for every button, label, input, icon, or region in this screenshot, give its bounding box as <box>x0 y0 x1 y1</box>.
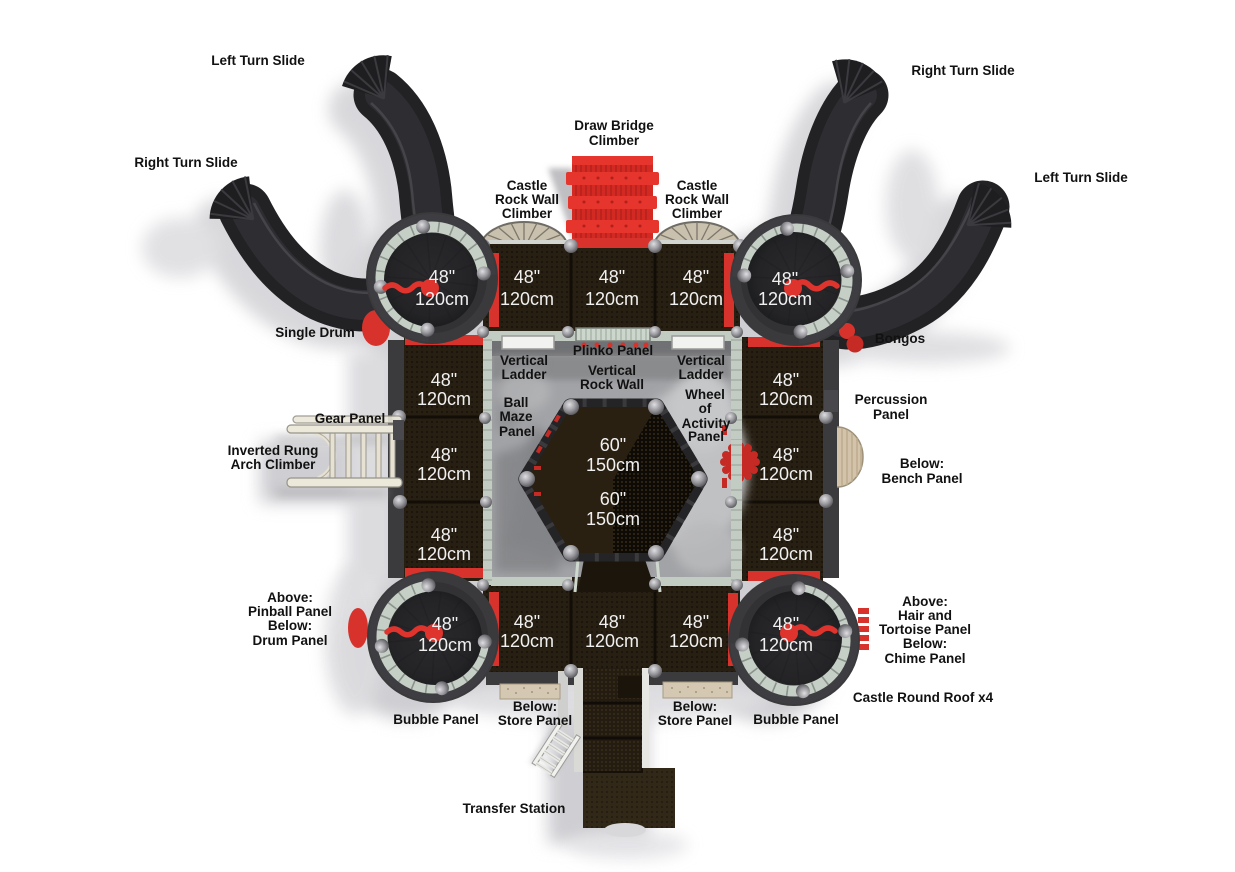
svg-text:Pinball Panel: Pinball Panel <box>248 604 332 619</box>
svg-text:Bubble Panel: Bubble Panel <box>753 712 839 727</box>
svg-text:Single Drum: Single Drum <box>275 325 355 340</box>
svg-text:Inverted Rung: Inverted Rung <box>228 443 319 458</box>
svg-text:Bongos: Bongos <box>875 331 925 346</box>
svg-text:Rock Wall: Rock Wall <box>665 192 729 207</box>
svg-text:48": 48" <box>683 267 709 287</box>
svg-text:Vertical: Vertical <box>500 353 548 368</box>
svg-text:Rock Wall: Rock Wall <box>495 192 559 207</box>
svg-text:120cm: 120cm <box>759 389 813 409</box>
svg-text:120cm: 120cm <box>585 289 639 309</box>
svg-text:Castle Round Roof x4: Castle Round Roof x4 <box>853 690 994 705</box>
svg-text:Rock Wall: Rock Wall <box>580 377 644 392</box>
svg-text:120cm: 120cm <box>759 635 813 655</box>
svg-text:48": 48" <box>773 445 799 465</box>
svg-text:120cm: 120cm <box>418 635 472 655</box>
svg-text:48": 48" <box>431 370 457 390</box>
svg-text:Gear Panel: Gear Panel <box>315 411 386 426</box>
svg-text:Hair and: Hair and <box>898 608 952 623</box>
svg-text:48": 48" <box>683 612 709 632</box>
svg-text:Left Turn Slide: Left Turn Slide <box>1034 170 1128 185</box>
svg-text:Ladder: Ladder <box>678 367 724 382</box>
svg-text:Bench Panel: Bench Panel <box>881 471 962 486</box>
svg-text:Store Panel: Store Panel <box>498 713 572 728</box>
svg-text:Right Turn Slide: Right Turn Slide <box>134 155 238 170</box>
svg-text:48": 48" <box>773 370 799 390</box>
svg-text:Chime Panel: Chime Panel <box>884 651 965 666</box>
svg-text:Climber: Climber <box>502 206 553 221</box>
svg-text:Below:: Below: <box>513 699 557 714</box>
svg-text:120cm: 120cm <box>417 389 471 409</box>
svg-text:120cm: 120cm <box>758 289 812 309</box>
svg-text:120cm: 120cm <box>500 631 554 651</box>
svg-text:48": 48" <box>431 525 457 545</box>
svg-text:Below:: Below: <box>903 636 947 651</box>
svg-text:Castle: Castle <box>507 178 548 193</box>
svg-text:48": 48" <box>431 445 457 465</box>
svg-text:120cm: 120cm <box>669 631 723 651</box>
svg-text:Percussion: Percussion <box>855 392 928 407</box>
svg-text:Vertical: Vertical <box>588 363 636 378</box>
svg-text:Transfer Station: Transfer Station <box>463 801 566 816</box>
svg-text:48": 48" <box>514 612 540 632</box>
svg-text:48": 48" <box>514 267 540 287</box>
svg-text:150cm: 150cm <box>586 509 640 529</box>
svg-text:Left Turn Slide: Left Turn Slide <box>211 53 305 68</box>
svg-text:Climber: Climber <box>672 206 723 221</box>
svg-text:120cm: 120cm <box>417 544 471 564</box>
svg-text:Panel: Panel <box>688 429 724 444</box>
svg-text:Below:: Below: <box>900 456 944 471</box>
svg-text:Vertical: Vertical <box>677 353 725 368</box>
svg-text:Tortoise Panel: Tortoise Panel <box>879 622 971 637</box>
svg-text:Below:: Below: <box>268 618 312 633</box>
svg-text:Plinko Panel: Plinko Panel <box>573 343 653 358</box>
svg-text:Bubble Panel: Bubble Panel <box>393 712 479 727</box>
svg-text:48": 48" <box>772 269 798 289</box>
svg-text:Ball: Ball <box>504 395 529 410</box>
svg-text:Below:: Below: <box>673 699 717 714</box>
svg-text:Above:: Above: <box>902 594 948 609</box>
svg-text:Panel: Panel <box>499 424 535 439</box>
svg-text:Store Panel: Store Panel <box>658 713 732 728</box>
svg-text:Panel: Panel <box>873 407 909 422</box>
svg-text:Arch Climber: Arch Climber <box>231 457 317 472</box>
svg-text:120cm: 120cm <box>669 289 723 309</box>
svg-text:48": 48" <box>599 267 625 287</box>
svg-text:120cm: 120cm <box>417 464 471 484</box>
svg-text:Above:: Above: <box>267 590 313 605</box>
svg-text:48": 48" <box>773 614 799 634</box>
svg-text:48": 48" <box>432 614 458 634</box>
svg-text:150cm: 150cm <box>586 455 640 475</box>
svg-text:120cm: 120cm <box>500 289 554 309</box>
svg-text:120cm: 120cm <box>759 544 813 564</box>
svg-text:120cm: 120cm <box>585 631 639 651</box>
svg-text:Ladder: Ladder <box>501 367 547 382</box>
svg-text:60": 60" <box>600 435 626 455</box>
svg-text:48": 48" <box>429 267 455 287</box>
svg-text:Draw Bridge: Draw Bridge <box>574 118 654 133</box>
svg-text:48": 48" <box>599 612 625 632</box>
svg-text:Castle: Castle <box>677 178 718 193</box>
svg-text:120cm: 120cm <box>759 464 813 484</box>
svg-text:Wheel: Wheel <box>685 387 725 402</box>
svg-text:48": 48" <box>773 525 799 545</box>
svg-text:Drum Panel: Drum Panel <box>252 633 327 648</box>
svg-text:Maze: Maze <box>499 409 533 424</box>
svg-text:120cm: 120cm <box>415 289 469 309</box>
svg-text:Right Turn Slide: Right Turn Slide <box>911 63 1015 78</box>
svg-text:60": 60" <box>600 489 626 509</box>
svg-text:Climber: Climber <box>589 133 640 148</box>
svg-text:of: of <box>699 401 712 416</box>
